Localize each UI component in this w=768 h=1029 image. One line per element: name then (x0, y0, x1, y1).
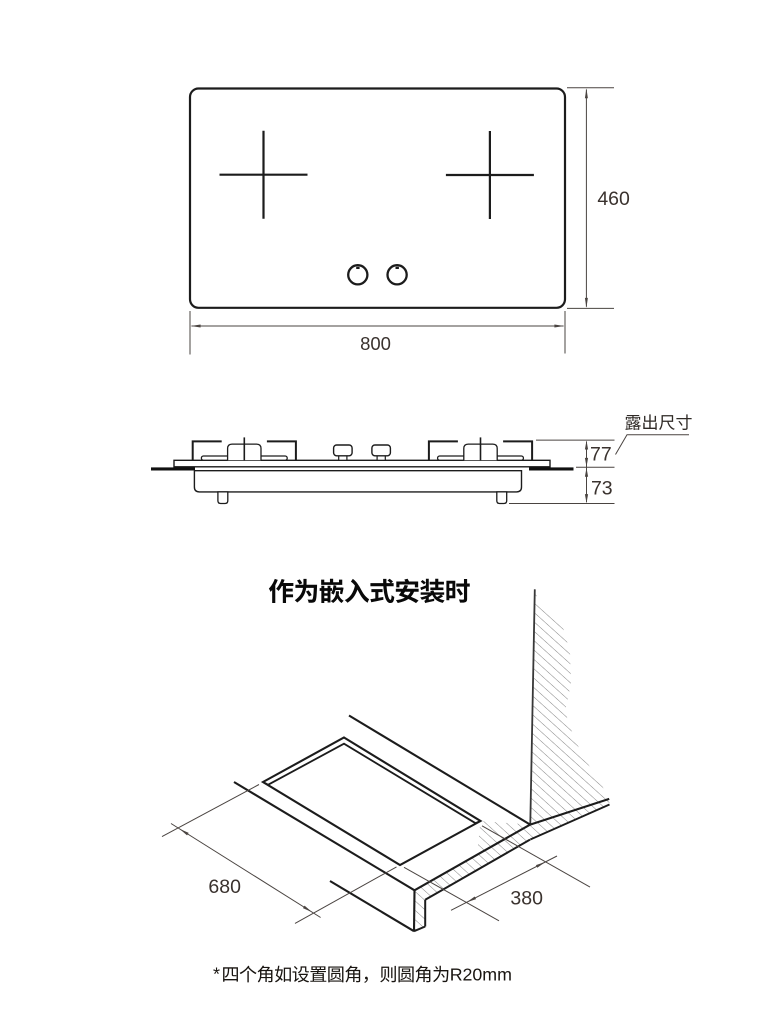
svg-text:800: 800 (360, 333, 391, 354)
svg-text:460: 460 (597, 188, 630, 210)
svg-text:R20mm: R20mm (450, 964, 512, 984)
svg-text:73: 73 (591, 478, 613, 500)
svg-text:*: * (213, 964, 220, 984)
svg-text:380: 380 (510, 888, 543, 910)
svg-text:680: 680 (208, 876, 241, 898)
svg-text:77: 77 (590, 444, 612, 466)
